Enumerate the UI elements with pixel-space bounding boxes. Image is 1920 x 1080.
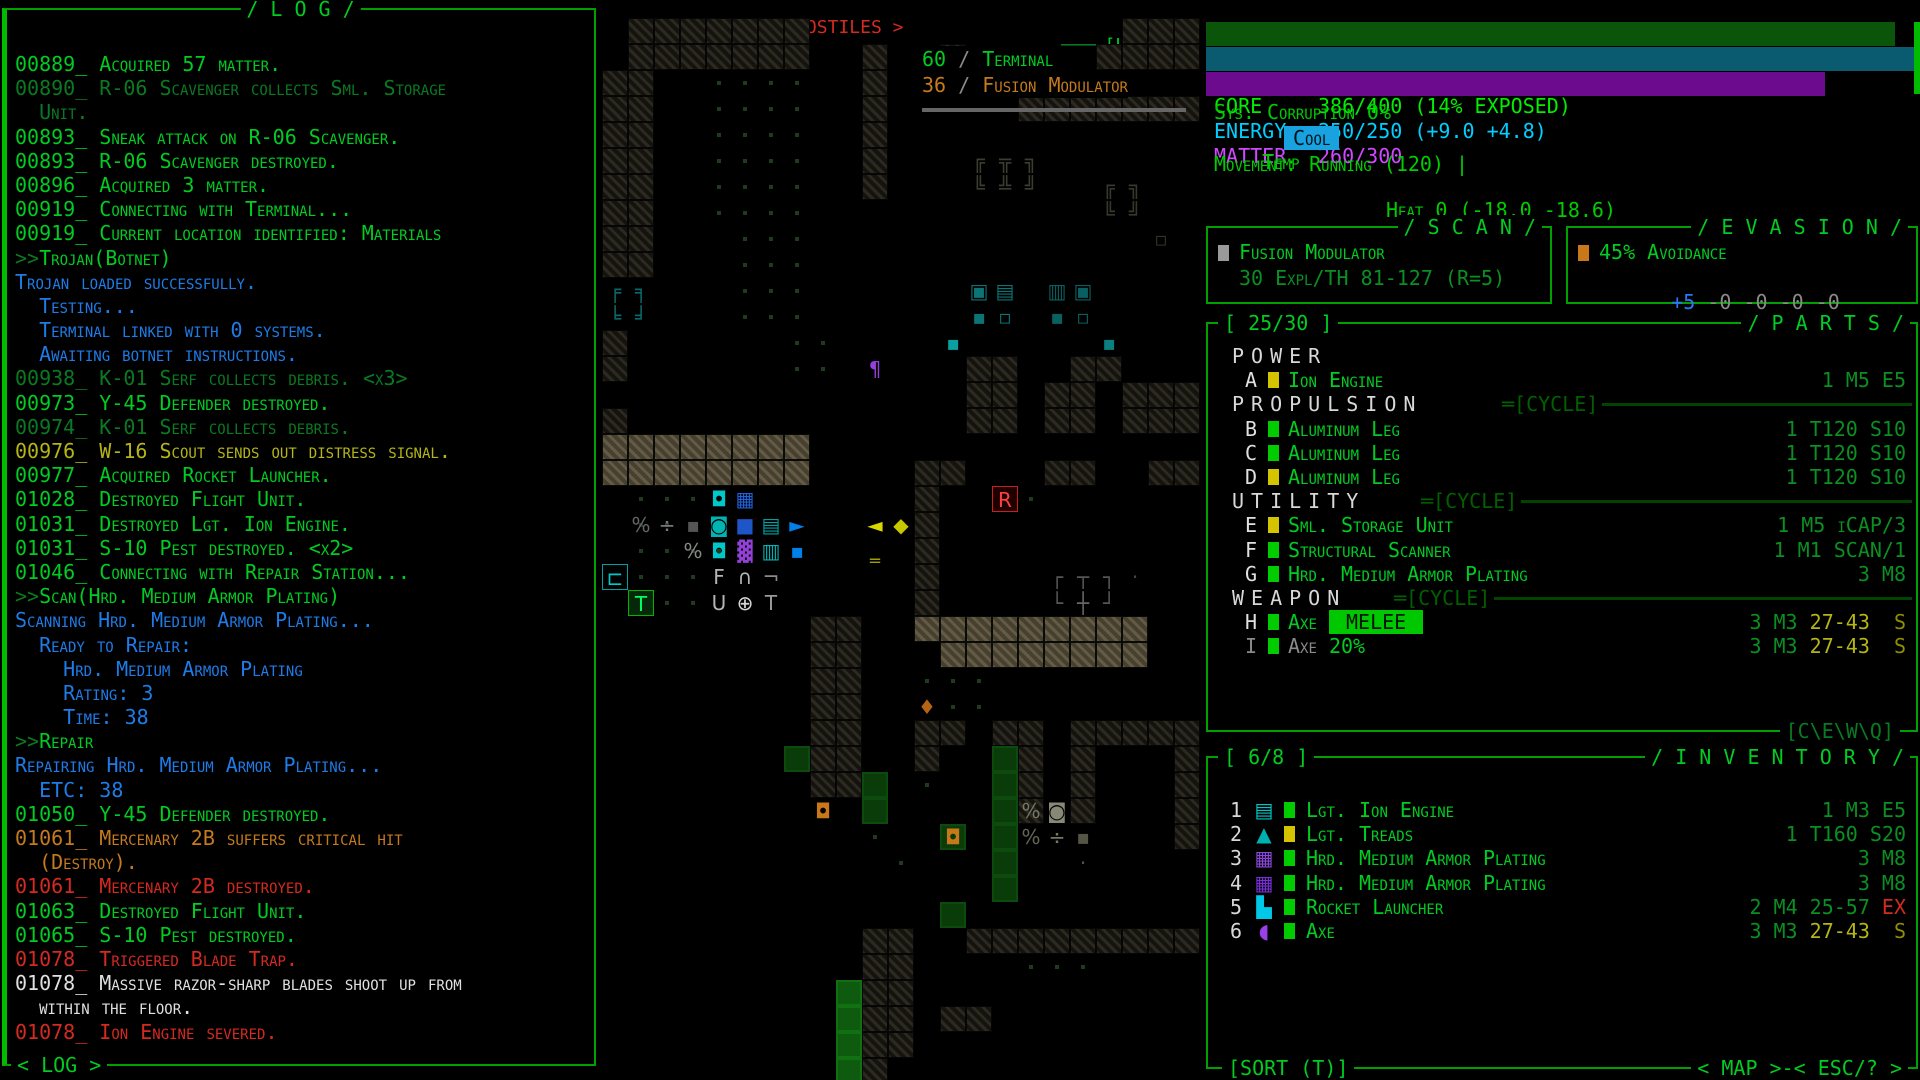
map-tile-floor[interactable] <box>732 278 758 304</box>
map-tile-wall[interactable] <box>836 720 862 746</box>
map-tile-wall[interactable] <box>1174 824 1200 850</box>
map-tile-floor[interactable] <box>1070 954 1096 980</box>
part-row-D[interactable]: DAluminum Leg1 T120 S10 <box>1208 465 1916 489</box>
map-entity[interactable]: ∩ <box>732 564 758 590</box>
map-tile-floor[interactable] <box>732 96 758 122</box>
map-tile-floor[interactable] <box>784 356 810 382</box>
map-tile-green[interactable] <box>940 902 966 928</box>
map-entity[interactable]: ╝ <box>1018 174 1044 200</box>
map-tile-wall[interactable] <box>862 928 888 954</box>
map-tile-wall[interactable] <box>862 174 888 200</box>
map-tile-wall[interactable] <box>1174 720 1200 746</box>
map-tile-wall[interactable] <box>1070 408 1096 434</box>
map-entity[interactable]: · <box>1070 850 1096 876</box>
map-tile-wall[interactable] <box>680 18 706 44</box>
map-grid[interactable]: ╔╦╗╚╩╝╔╗╚╝▫╒╕╘╛▣▤▥▣▪▫▪▫▪▪¶%÷▪◘▦◙■▤►%◘▓▥▪… <box>602 18 1202 1080</box>
map-tile-green[interactable] <box>992 850 1018 876</box>
log-footer-button[interactable]: < LOG > <box>11 1053 107 1077</box>
map-tile-wall[interactable] <box>1070 772 1096 798</box>
map-tile-floor[interactable] <box>888 850 914 876</box>
part-row-G[interactable]: GHrd. Medium Armor Plating3 M8 <box>1208 562 1916 586</box>
map-tile-green[interactable] <box>784 746 810 772</box>
map-tile-wall[interactable] <box>940 720 966 746</box>
map-tile-wall[interactable] <box>992 720 1018 746</box>
map-tile-wall[interactable] <box>992 928 1018 954</box>
map-tile-wallb[interactable] <box>706 434 732 460</box>
map-tile-wall[interactable] <box>602 148 628 174</box>
map-tile-wall[interactable] <box>862 1032 888 1058</box>
map-tile-wall[interactable] <box>888 928 914 954</box>
map-entity[interactable]: ◘ <box>810 798 836 824</box>
terminal-tile[interactable]: T <box>628 590 654 616</box>
map-tile-wall[interactable] <box>628 18 654 44</box>
map-entity[interactable]: F <box>706 564 732 590</box>
map-entity[interactable]: ╗ <box>1122 174 1148 200</box>
map-tile-floor[interactable] <box>732 174 758 200</box>
map-tile-floor[interactable] <box>732 70 758 96</box>
map-tile-wall[interactable] <box>810 720 836 746</box>
map-entity[interactable]: ¶ <box>862 356 888 382</box>
map-entity[interactable]: ┼ <box>1070 590 1096 616</box>
map-tile-floor[interactable] <box>914 772 940 798</box>
map-tile-wall[interactable] <box>706 18 732 44</box>
map-tile-floor[interactable] <box>758 122 784 148</box>
map-entity[interactable]: ┐ <box>1096 564 1122 590</box>
map-tile-wall[interactable] <box>862 954 888 980</box>
map-tile-wallb[interactable] <box>680 460 706 486</box>
map-tile-wall[interactable] <box>758 44 784 70</box>
map-tile-wall[interactable] <box>888 1032 914 1058</box>
map-tile-wall[interactable] <box>1018 772 1044 798</box>
map-entity[interactable]: └ <box>1044 590 1070 616</box>
map-tile-wallb[interactable] <box>732 460 758 486</box>
map-tile-wall[interactable] <box>628 200 654 226</box>
map-tile-wall[interactable] <box>628 226 654 252</box>
map-tile-wallb[interactable] <box>758 434 784 460</box>
part-row-C[interactable]: CAluminum Leg1 T120 S10 <box>1208 441 1916 465</box>
map-tile-wall[interactable] <box>602 122 628 148</box>
map-tile-wallb[interactable] <box>1018 642 1044 668</box>
map-entity[interactable]: ¬ <box>758 564 784 590</box>
map-tile-floor[interactable] <box>1018 486 1044 512</box>
map-tile-wall[interactable] <box>836 772 862 798</box>
map-entity[interactable]: % <box>1018 824 1044 850</box>
map-tile-wallb[interactable] <box>966 642 992 668</box>
map-tile-wall[interactable] <box>888 1006 914 1032</box>
map-tile-wall[interactable] <box>992 408 1018 434</box>
map-tile-wall[interactable] <box>1174 18 1200 44</box>
map-tile-wall[interactable] <box>654 18 680 44</box>
map-tile-floor[interactable] <box>732 252 758 278</box>
map-tile-wall[interactable] <box>966 356 992 382</box>
map-tile-wall[interactable] <box>1070 928 1096 954</box>
map-tile-wall[interactable] <box>966 928 992 954</box>
map-tile-greenb[interactable] <box>836 1032 862 1058</box>
map-tile-floor[interactable] <box>706 122 732 148</box>
map-tile-wallb[interactable] <box>602 434 628 460</box>
map-tile-wallb[interactable] <box>992 616 1018 642</box>
map-tile-wall[interactable] <box>966 408 992 434</box>
map-tile-wall[interactable] <box>914 720 940 746</box>
map-tile-wallb[interactable] <box>654 434 680 460</box>
map-tile-wall[interactable] <box>992 356 1018 382</box>
map-tile-wallb[interactable] <box>940 642 966 668</box>
map-tile-wallb[interactable] <box>784 460 810 486</box>
inventory-row-3[interactable]: 3▦Hrd. Medium Armor Plating3 M8 <box>1208 846 1916 870</box>
map-tile-floor[interactable] <box>784 330 810 356</box>
map-tile-wall[interactable] <box>1044 408 1070 434</box>
map-tile-wall[interactable] <box>1122 18 1148 44</box>
map-entity[interactable]: ▪ <box>1044 304 1070 330</box>
map-tile-wall[interactable] <box>1018 720 1044 746</box>
map-tile-wall[interactable] <box>1148 18 1174 44</box>
map-entity[interactable]: % <box>628 512 654 538</box>
map-tile-wall[interactable] <box>628 96 654 122</box>
map-tile-wallb[interactable] <box>966 616 992 642</box>
map-tile-floor[interactable] <box>784 148 810 174</box>
map-tile-wallb[interactable] <box>628 460 654 486</box>
map-entity[interactable]: ◆ <box>888 512 914 538</box>
map-tile-floor[interactable] <box>784 304 810 330</box>
map-tile-wall[interactable] <box>888 954 914 980</box>
map-tile-floor[interactable] <box>706 96 732 122</box>
map-tile-wall[interactable] <box>654 44 680 70</box>
map-tile-floor[interactable] <box>1044 954 1070 980</box>
map-entity[interactable]: ▣ <box>966 278 992 304</box>
part-row-F[interactable]: FStructural Scanner1 M1 SCAN/1 <box>1208 538 1916 562</box>
map-entity[interactable]: ▦ <box>732 486 758 512</box>
map-tile-floor[interactable] <box>732 226 758 252</box>
map-tile-floor[interactable] <box>732 148 758 174</box>
map-tile-wall[interactable] <box>784 18 810 44</box>
map-entity[interactable]: ╚ <box>966 174 992 200</box>
map-tile-wall[interactable] <box>810 668 836 694</box>
map-tile-wallb[interactable] <box>914 616 940 642</box>
map-tile-floor[interactable] <box>706 148 732 174</box>
map-entity[interactable]: ▥ <box>758 538 784 564</box>
map-entity[interactable]: ╒ <box>602 278 628 304</box>
map-tile-wall[interactable] <box>836 746 862 772</box>
map-entity[interactable]: ╝ <box>1122 200 1148 226</box>
inventory-row-2[interactable]: 2▲Lgt. Treads1 T160 S20 <box>1208 822 1916 846</box>
map-tile-wall[interactable] <box>862 1006 888 1032</box>
map-tile-wall[interactable] <box>862 1058 888 1080</box>
map-tile-wall[interactable] <box>602 70 628 96</box>
avoidance-value[interactable]: 45% Avoidance <box>1599 240 1727 264</box>
map-entity[interactable]: ▫ <box>1148 226 1174 252</box>
map-tile-wall[interactable] <box>1148 382 1174 408</box>
map-tile-wallb[interactable] <box>680 434 706 460</box>
map-tile-floor[interactable] <box>784 122 810 148</box>
cycle-button[interactable]: ═[CYCLE] <box>1502 392 1598 416</box>
map-tile-wall[interactable] <box>758 18 784 44</box>
map-tile-floor[interactable] <box>784 278 810 304</box>
map-tile-wallb[interactable] <box>602 460 628 486</box>
map-entity[interactable]: ▪ <box>1070 824 1096 850</box>
map-tile-wall[interactable] <box>836 694 862 720</box>
map-tile-wall[interactable] <box>914 590 940 616</box>
map-tile-wallb[interactable] <box>992 642 1018 668</box>
map-tile-wall[interactable] <box>602 330 628 356</box>
map-tile-floor[interactable] <box>758 278 784 304</box>
map-entity[interactable]: ▪ <box>784 538 810 564</box>
map-tile-wall[interactable] <box>1148 720 1174 746</box>
map-tile-floor[interactable] <box>732 122 758 148</box>
map-entity[interactable]: % <box>1018 798 1044 824</box>
map-tile-wall[interactable] <box>914 564 940 590</box>
map-tile-wall[interactable] <box>1070 746 1096 772</box>
targeting-cursor[interactable]: ⊕ <box>732 590 758 616</box>
machine-access-tile[interactable]: ⊏ <box>602 564 628 590</box>
map-entity[interactable]: ╚ <box>1096 200 1122 226</box>
map-tile-wall[interactable] <box>1174 460 1200 486</box>
map-tile-floor[interactable] <box>784 226 810 252</box>
map-tile-wall[interactable] <box>836 642 862 668</box>
map-tile-wallb[interactable] <box>1044 616 1070 642</box>
map-tile-wall[interactable] <box>1148 460 1174 486</box>
map-tile-floor[interactable] <box>628 486 654 512</box>
map-entity[interactable]: · <box>1122 564 1148 590</box>
map-tile-wall[interactable] <box>1044 928 1070 954</box>
map-tile-green[interactable] <box>992 824 1018 850</box>
map-tile-wall[interactable] <box>862 96 888 122</box>
map-tile-wall[interactable] <box>862 70 888 96</box>
map-tile-wallb[interactable] <box>1096 616 1122 642</box>
map-tile-wall[interactable] <box>732 44 758 70</box>
map-tile-wall[interactable] <box>602 200 628 226</box>
map-entity[interactable]: ♦ <box>914 694 940 720</box>
map-entity[interactable]: ■ <box>732 512 758 538</box>
map-tile-green[interactable] <box>862 798 888 824</box>
map-tile-wallb[interactable] <box>1070 616 1096 642</box>
inventory-row-4[interactable]: 4▦Hrd. Medium Armor Plating3 M8 <box>1208 871 1916 895</box>
map-tile-wall[interactable] <box>602 96 628 122</box>
map-tile-floor[interactable] <box>810 356 836 382</box>
map-entity[interactable]: ▫ <box>1070 304 1096 330</box>
map-tile-wall[interactable] <box>706 44 732 70</box>
map-tile-wallb[interactable] <box>1044 642 1070 668</box>
map-tile-wall[interactable] <box>680 44 706 70</box>
map-tile-floor[interactable] <box>966 694 992 720</box>
map-entity[interactable]: ╘ <box>602 304 628 330</box>
map-tile-wall[interactable] <box>602 226 628 252</box>
map-tile-floor[interactable] <box>1018 954 1044 980</box>
map-entity[interactable]: % <box>680 538 706 564</box>
map-tile-wall[interactable] <box>732 18 758 44</box>
map-entity[interactable]: ╦ <box>992 148 1018 174</box>
map-entity[interactable]: ▥ <box>1044 278 1070 304</box>
map-tile-greenb[interactable] <box>836 1058 862 1080</box>
map-tile-wall[interactable] <box>1018 928 1044 954</box>
map-tile-green[interactable] <box>862 772 888 798</box>
map-entity[interactable]: ▫ <box>992 304 1018 330</box>
map-tile-floor[interactable] <box>758 96 784 122</box>
map-tile-wallb[interactable] <box>706 460 732 486</box>
map-entity[interactable]: ▪ <box>1096 330 1122 356</box>
part-row-I[interactable]: IAxe 20%3 M3 27-43 S <box>1208 634 1916 658</box>
map-tile-wall[interactable] <box>940 1006 966 1032</box>
map-entity[interactable]: ▣ <box>1070 278 1096 304</box>
map-tile-floor[interactable] <box>862 824 888 850</box>
map-tile-wall[interactable] <box>1070 720 1096 746</box>
part-row-E[interactable]: ESml. Storage Unit1 M5 iCAP/3 <box>1208 513 1916 537</box>
map-entity[interactable]: ╕ <box>628 278 654 304</box>
map-entity[interactable]: ╩ <box>992 174 1018 200</box>
map-tile-wall[interactable] <box>628 252 654 278</box>
map-tile-wall[interactable] <box>810 694 836 720</box>
map-entity[interactable]: ▪ <box>680 512 706 538</box>
map-tile-floor[interactable] <box>628 538 654 564</box>
inventory-row-1[interactable]: 1▤Lgt. Ion Engine1 M3 E5 <box>1208 798 1916 822</box>
map-tile-wall[interactable] <box>810 642 836 668</box>
part-row-A[interactable]: AIon Engine1 M5 E5 <box>1208 368 1916 392</box>
map-tile-floor[interactable] <box>784 70 810 96</box>
map-tile-wallb[interactable] <box>1122 616 1148 642</box>
map-tile-wall[interactable] <box>940 460 966 486</box>
map-tile-wall[interactable] <box>628 122 654 148</box>
map-tile-wall[interactable] <box>1096 928 1122 954</box>
map-tile-wall[interactable] <box>602 174 628 200</box>
map-tile-wall[interactable] <box>628 44 654 70</box>
map-tile-floor[interactable] <box>706 200 732 226</box>
map-entity[interactable]: ▤ <box>992 278 1018 304</box>
map-tile-wall[interactable] <box>1174 928 1200 954</box>
map-entity[interactable]: ◄ <box>862 512 888 538</box>
map-tile-wall[interactable] <box>1174 746 1200 772</box>
map-tile-floor[interactable] <box>758 304 784 330</box>
map-tile-floor[interactable] <box>966 668 992 694</box>
map-entity[interactable]: ▪ <box>940 330 966 356</box>
map-tile-floor[interactable] <box>732 304 758 330</box>
map-tile-green[interactable] <box>992 876 1018 902</box>
map-tile-wall[interactable] <box>1148 44 1174 70</box>
map-tile-wall[interactable] <box>1070 798 1096 824</box>
map-tile-green[interactable] <box>992 798 1018 824</box>
map-tile-wall[interactable] <box>862 148 888 174</box>
map-tile-wall[interactable] <box>1096 356 1122 382</box>
sort-button[interactable]: [SORT (T)] <box>1222 1056 1354 1080</box>
map-tile-wall[interactable] <box>628 70 654 96</box>
map-entity[interactable]: ÷ <box>654 512 680 538</box>
map-tile-wallb[interactable] <box>784 434 810 460</box>
map-tile-wall[interactable] <box>862 122 888 148</box>
map-tile-wallb[interactable] <box>1096 642 1122 668</box>
map-tile-wall[interactable] <box>836 616 862 642</box>
inventory-row-6[interactable]: 6◖Axe3 M3 27-43 S <box>1208 919 1916 943</box>
map-tile-wall[interactable] <box>914 512 940 538</box>
map-tile-wall[interactable] <box>1174 408 1200 434</box>
map-tile-greenb[interactable] <box>836 980 862 1006</box>
map-entity[interactable]: ◘ <box>706 538 732 564</box>
hostile-robot[interactable]: R <box>992 486 1018 512</box>
map-tile-wall[interactable] <box>1096 720 1122 746</box>
map-tile-floor[interactable] <box>732 200 758 226</box>
map-tile-wall[interactable] <box>1070 356 1096 382</box>
map-tile-floor[interactable] <box>784 96 810 122</box>
map-tile-wall[interactable] <box>914 538 940 564</box>
map-entity[interactable]: ▪ <box>966 304 992 330</box>
map-entity[interactable]: ‗ <box>862 538 888 564</box>
map-tile-green[interactable] <box>992 772 1018 798</box>
map-tile-wall[interactable] <box>914 486 940 512</box>
map-tile-floor[interactable] <box>758 200 784 226</box>
map-tile-floor[interactable] <box>654 590 680 616</box>
map-entity[interactable]: ╔ <box>1096 174 1122 200</box>
map-tile-floor[interactable] <box>758 148 784 174</box>
map-tile-floor[interactable] <box>940 694 966 720</box>
map-tile-green[interactable] <box>992 746 1018 772</box>
map-tile-floor[interactable] <box>680 486 706 512</box>
map-tile-wall[interactable] <box>810 616 836 642</box>
map-tile-floor[interactable] <box>784 200 810 226</box>
map-entity[interactable]: ┬ <box>1070 564 1096 590</box>
map-entity[interactable]: ◙ <box>1044 798 1070 824</box>
map-tile-wall[interactable] <box>1018 746 1044 772</box>
cycle-button[interactable]: ═[CYCLE] <box>1421 489 1517 513</box>
map-tile-floor[interactable] <box>654 538 680 564</box>
map-tile-wallb[interactable] <box>654 460 680 486</box>
map-tile-wall[interactable] <box>1122 928 1148 954</box>
map-tile-floor[interactable] <box>758 226 784 252</box>
map-tile-floor[interactable] <box>784 174 810 200</box>
map-tile-wall[interactable] <box>1070 460 1096 486</box>
map-tile-floor[interactable] <box>654 564 680 590</box>
map-tile-wall[interactable] <box>810 772 836 798</box>
map-tile-wall[interactable] <box>966 382 992 408</box>
map-esc-buttons[interactable]: < MAP >-< ESC/? > <box>1691 1056 1908 1080</box>
map-tile-floor[interactable] <box>758 174 784 200</box>
map-tile-wall[interactable] <box>628 148 654 174</box>
map-tile-wallb[interactable] <box>1018 616 1044 642</box>
map-tile-floor[interactable] <box>628 564 654 590</box>
map-tile-greenb[interactable] <box>836 1006 862 1032</box>
map-tile-wall[interactable] <box>862 980 888 1006</box>
parts-footer-shortcuts[interactable]: [C\E\W\Q] <box>1780 719 1900 743</box>
map-tile-wall[interactable] <box>966 1006 992 1032</box>
scan-item-name[interactable]: Fusion Modulator <box>1239 240 1385 264</box>
map-tile-floor[interactable] <box>680 590 706 616</box>
map-tile-wall[interactable] <box>602 356 628 382</box>
map-tile-wall[interactable] <box>1148 408 1174 434</box>
map-tile-wall[interactable] <box>836 668 862 694</box>
map-tile-floor[interactable] <box>914 668 940 694</box>
map-tile-wall[interactable] <box>628 174 654 200</box>
map-entity[interactable]: ◘ <box>940 824 966 850</box>
map-tile-wall[interactable] <box>1070 382 1096 408</box>
map-tile-wallb[interactable] <box>1122 642 1148 668</box>
map-tile-wall[interactable] <box>1044 460 1070 486</box>
map-tile-wall[interactable] <box>784 44 810 70</box>
map-tile-wall[interactable] <box>1044 382 1070 408</box>
map-tile-wallb[interactable] <box>732 434 758 460</box>
map-entity[interactable]: U <box>706 590 732 616</box>
map-entity[interactable]: ┌ <box>1044 564 1070 590</box>
map-entity[interactable]: ◙ <box>706 512 732 538</box>
map-entity[interactable]: ► <box>784 512 810 538</box>
map-entity[interactable]: ┘ <box>1096 590 1122 616</box>
part-row-B[interactable]: BAluminum Leg1 T120 S10 <box>1208 417 1916 441</box>
map-entity[interactable]: ÷ <box>1044 824 1070 850</box>
cycle-button[interactable]: ═[CYCLE] <box>1394 586 1490 610</box>
inventory-row-5[interactable]: 5▙Rocket Launcher2 M4 25-57 EX <box>1208 895 1916 919</box>
map-tile-floor[interactable] <box>654 486 680 512</box>
map-tile-floor[interactable] <box>758 70 784 96</box>
map-tile-wall[interactable] <box>914 460 940 486</box>
map-tile-floor[interactable] <box>940 668 966 694</box>
map-entity[interactable]: ╗ <box>1018 148 1044 174</box>
map-entity[interactable]: ╔ <box>966 148 992 174</box>
map-entity[interactable]: T <box>758 590 784 616</box>
